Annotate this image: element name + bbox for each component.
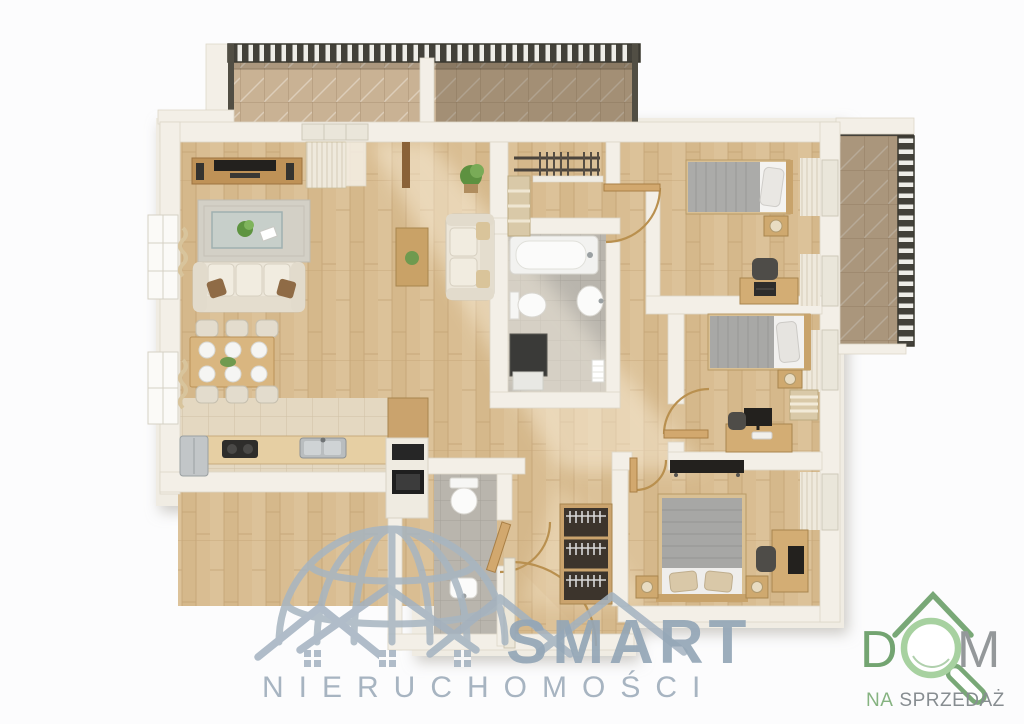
window-bedroom2: [822, 330, 838, 390]
loveseat: [446, 214, 494, 300]
hall-wardrobe: [560, 504, 612, 604]
chair: [756, 546, 776, 572]
washing-machine: [510, 334, 547, 376]
tall-cabinet: [388, 398, 428, 438]
chair: [728, 412, 746, 430]
bed-frame: [656, 594, 748, 602]
real-estate-floorplan-image: SMART NIERUCHOMOŚCI D M NASPRZEDAŻ: [0, 0, 1024, 724]
chair: [226, 320, 248, 337]
toilet-tank: [450, 478, 478, 488]
curtain: [800, 158, 820, 216]
open-door-leaf: [402, 142, 410, 188]
blanket: [688, 162, 760, 212]
wall-master-left: [612, 470, 628, 606]
speaker: [196, 163, 204, 180]
lamp: [752, 582, 763, 593]
toilet: [451, 488, 477, 514]
tv: [214, 160, 276, 171]
door-leaf-master: [630, 458, 637, 492]
plant: [405, 251, 419, 265]
chair: [226, 386, 248, 403]
pillow: [704, 571, 733, 593]
curtain: [800, 472, 820, 530]
smart-watermark-subtitle: NIERUCHOMOŚCI: [262, 673, 715, 703]
dining-area: [190, 320, 278, 403]
monitor: [788, 546, 804, 574]
keyboard: [752, 432, 772, 439]
balcony-top: [206, 44, 640, 126]
balcony-railing: [898, 136, 914, 346]
wall-tv: [670, 460, 744, 473]
wall: [836, 118, 914, 134]
sofa-three-seat: [193, 262, 305, 312]
door-leaf-closet: [604, 184, 660, 191]
lamp: [770, 220, 782, 232]
blanket: [710, 316, 774, 368]
wall-master-top-1: [612, 452, 632, 470]
door-leaf-bedroom2: [664, 430, 708, 438]
chair: [196, 320, 218, 337]
wall-bedroom2-left: [668, 314, 684, 404]
shelf-board: [533, 176, 603, 182]
towel: [592, 360, 604, 382]
chair: [256, 386, 278, 403]
dom-logo-letter-d: D: [860, 624, 898, 676]
headboard: [804, 314, 811, 370]
curtain: [800, 254, 820, 306]
wall-left: [160, 122, 180, 494]
pillow: [776, 321, 800, 363]
chair: [256, 320, 278, 337]
curtain-striped: [306, 142, 346, 188]
wall-closet-right: [606, 142, 620, 184]
balcony-right: [836, 126, 914, 350]
wall-wc-right-1: [497, 474, 512, 520]
pillow: [476, 270, 490, 288]
pillow: [669, 571, 698, 593]
dom-logo-tagline: NASPRZEDAŻ: [866, 691, 1005, 710]
chair: [196, 386, 218, 403]
window-master: [822, 474, 838, 530]
wall: [836, 344, 906, 354]
toilet: [518, 293, 546, 317]
dom-tagline-na: NA: [866, 690, 893, 711]
dom-tagline-sprzedaz: SPRZEDAŻ: [899, 690, 1004, 711]
pillow: [476, 222, 490, 240]
curtain-sheer: [346, 142, 366, 186]
smart-watermark-title: SMART: [506, 612, 751, 674]
dom-logo-letter-m: M: [957, 624, 1000, 676]
wall-bedroom1-left: [646, 190, 660, 310]
lamp: [785, 374, 796, 385]
wall-top: [160, 122, 840, 142]
faucet: [587, 252, 593, 258]
faucet: [321, 438, 326, 443]
chair: [752, 258, 778, 280]
window-bedroom1: [822, 256, 838, 306]
soundbar: [230, 173, 260, 178]
centerpiece: [220, 357, 236, 367]
oven: [392, 444, 424, 460]
wall-bath-right: [606, 242, 620, 408]
balcony-door-bedroom1: [822, 160, 838, 216]
lamp: [642, 582, 653, 593]
balcony-door: [302, 124, 368, 140]
headboard: [786, 160, 793, 214]
wall-bath-bottom: [490, 392, 620, 408]
monitor: [744, 408, 772, 426]
speaker: [286, 163, 294, 180]
